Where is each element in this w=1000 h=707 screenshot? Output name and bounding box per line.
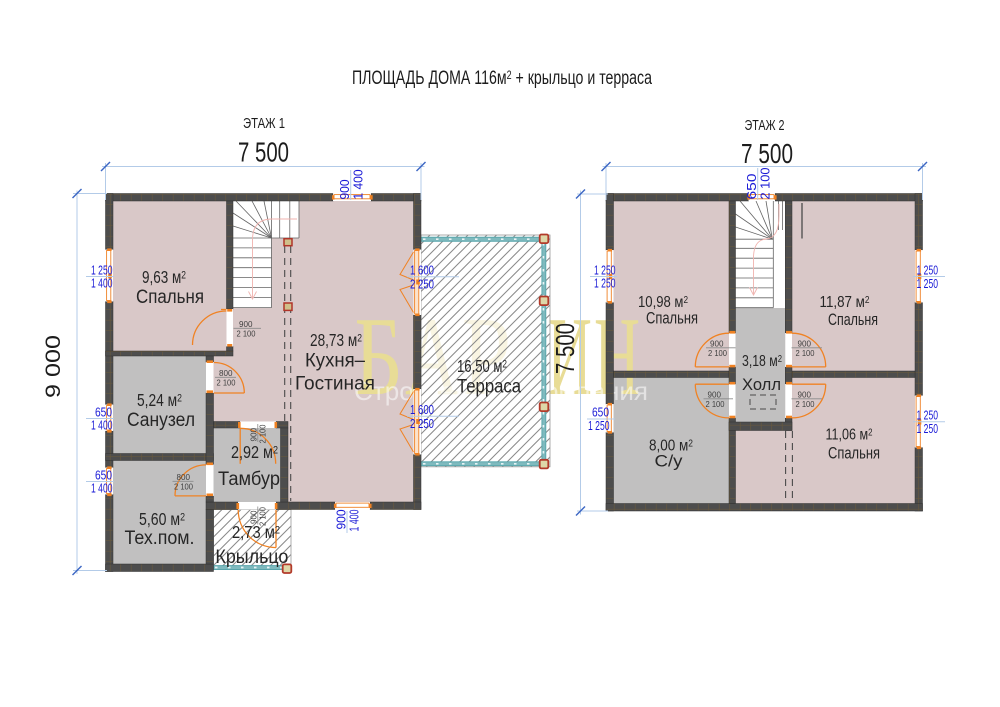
svg-text:2 100: 2 100 <box>796 349 816 358</box>
svg-text:Спальня: Спальня <box>136 287 204 308</box>
svg-text:900: 900 <box>798 340 812 349</box>
svg-text:2,92 м2: 2,92 м2 <box>231 442 278 462</box>
svg-text:1 250: 1 250 <box>594 264 616 278</box>
svg-text:Спальня: Спальня <box>828 444 880 463</box>
svg-text:7 500: 7 500 <box>741 138 793 169</box>
svg-text:900: 900 <box>250 510 259 524</box>
svg-text:1 400: 1 400 <box>348 509 362 531</box>
svg-text:900: 900 <box>338 179 352 199</box>
svg-text:650: 650 <box>95 469 112 483</box>
svg-text:9 000: 9 000 <box>42 335 65 398</box>
svg-text:ЭТАЖ 1: ЭТАЖ 1 <box>243 116 285 132</box>
svg-text:650: 650 <box>745 173 759 199</box>
svg-text:Холл: Холл <box>742 375 781 394</box>
svg-text:1 400: 1 400 <box>352 169 366 199</box>
svg-text:2 100: 2 100 <box>237 330 257 339</box>
svg-text:1 250: 1 250 <box>917 409 939 423</box>
svg-text:1 250: 1 250 <box>917 264 939 278</box>
svg-text:800: 800 <box>177 473 191 482</box>
svg-text:Спальня: Спальня <box>828 310 878 329</box>
svg-text:Крыльцо: Крыльцо <box>215 547 288 568</box>
svg-text:2 100: 2 100 <box>708 349 728 358</box>
svg-text:1 600: 1 600 <box>410 403 434 417</box>
svg-text:Терраса: Терраса <box>457 377 521 398</box>
svg-text:900: 900 <box>239 320 253 329</box>
svg-text:Тех.пом.: Тех.пом. <box>125 528 195 549</box>
svg-text:2 100: 2 100 <box>258 424 267 444</box>
svg-text:7 500: 7 500 <box>238 137 289 168</box>
svg-text:900: 900 <box>798 391 812 400</box>
svg-text:Спальня: Спальня <box>646 309 698 328</box>
svg-text:ПЛОЩАДЬ ДОМА 116м2 + крыльцо и: ПЛОЩАДЬ ДОМА 116м2 + крыльцо и терраса <box>352 68 652 89</box>
svg-text:2 100: 2 100 <box>217 379 237 388</box>
svg-text:11,06 м2: 11,06 м2 <box>826 427 873 444</box>
svg-text:Санузел: Санузел <box>127 410 195 431</box>
svg-text:9,63 м2: 9,63 м2 <box>142 267 186 287</box>
svg-text:900: 900 <box>250 427 259 441</box>
svg-text:2 100: 2 100 <box>706 400 726 409</box>
svg-text:650: 650 <box>592 406 609 420</box>
svg-text:900: 900 <box>335 509 349 529</box>
svg-text:1 400: 1 400 <box>91 482 113 496</box>
svg-text:5,24 м2: 5,24 м2 <box>137 390 182 410</box>
svg-text:2 100: 2 100 <box>258 506 267 526</box>
svg-text:2 100: 2 100 <box>174 483 194 492</box>
svg-text:5,60 м2: 5,60 м2 <box>139 509 185 529</box>
svg-text:2 250: 2 250 <box>410 278 434 292</box>
svg-text:1 250: 1 250 <box>594 277 616 291</box>
svg-text:7 500: 7 500 <box>550 323 580 374</box>
svg-text:1 250: 1 250 <box>588 419 610 433</box>
svg-text:ЭТАЖ 2: ЭТАЖ 2 <box>745 118 785 134</box>
svg-text:2 250: 2 250 <box>410 417 434 431</box>
svg-text:28,73 м2: 28,73 м2 <box>310 330 362 350</box>
svg-text:1 250: 1 250 <box>91 264 113 278</box>
svg-text:1 600: 1 600 <box>410 264 434 278</box>
svg-text:900: 900 <box>708 391 722 400</box>
svg-text:2 100: 2 100 <box>796 400 816 409</box>
svg-text:Тамбур: Тамбур <box>218 469 280 490</box>
svg-text:11,87 м2: 11,87 м2 <box>820 294 870 311</box>
svg-text:1 400: 1 400 <box>91 419 113 433</box>
svg-text:2,73 м2: 2,73 м2 <box>232 522 280 542</box>
svg-text:С/у: С/у <box>655 452 684 471</box>
svg-text:Гостиная: Гостиная <box>295 374 375 395</box>
svg-text:1 250: 1 250 <box>917 422 939 436</box>
svg-text:900: 900 <box>710 340 724 349</box>
svg-text:3,18 м2: 3,18 м2 <box>742 353 782 370</box>
svg-text:800: 800 <box>219 369 233 378</box>
svg-text:16,50 м2: 16,50 м2 <box>457 356 507 376</box>
svg-text:1 400: 1 400 <box>91 277 113 291</box>
svg-text:Кухня–: Кухня– <box>305 351 365 372</box>
svg-text:650: 650 <box>95 406 112 420</box>
svg-text:1 250: 1 250 <box>917 277 939 291</box>
svg-text:2 100: 2 100 <box>759 167 773 199</box>
